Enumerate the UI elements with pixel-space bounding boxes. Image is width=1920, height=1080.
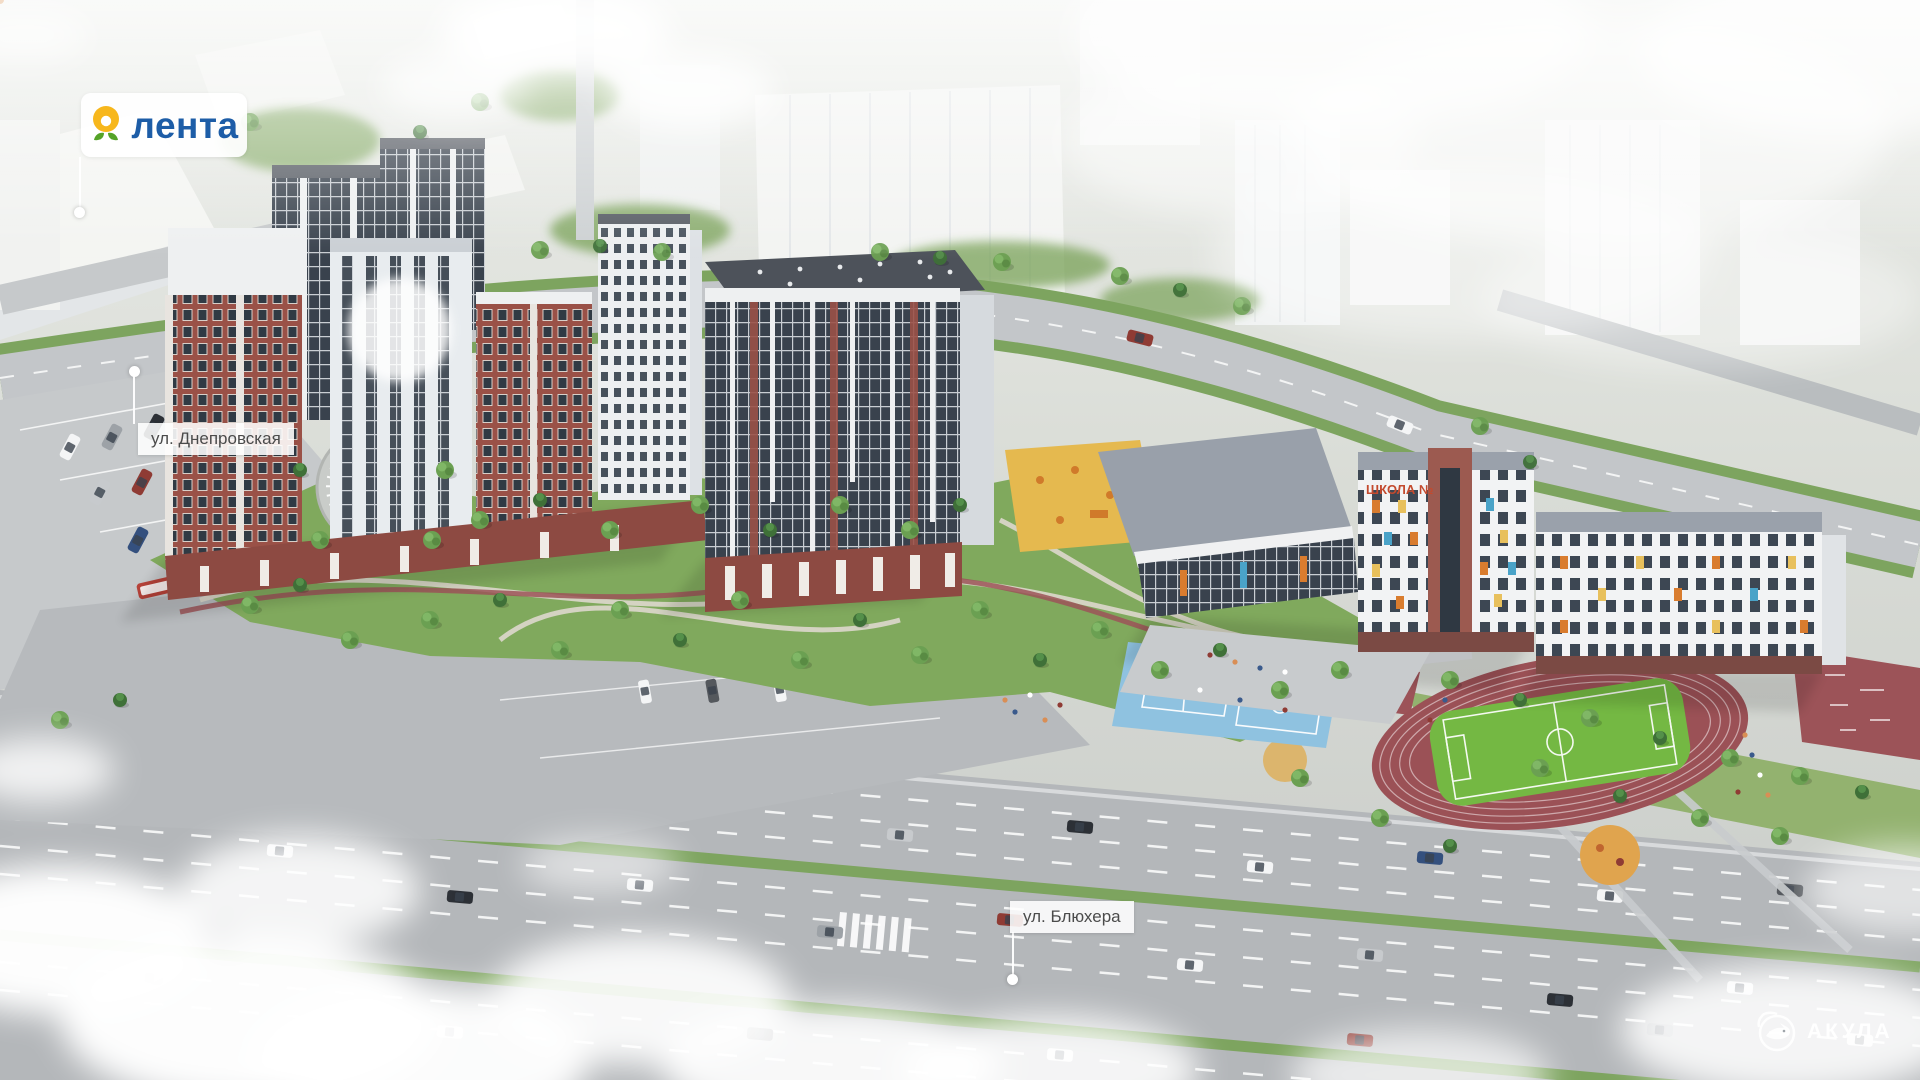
lenta-store-badge: лента xyxy=(81,93,247,157)
akula-watermark: АКУЛА xyxy=(1756,1010,1893,1054)
blyukhera-leader-dot xyxy=(1007,974,1018,985)
lenta-logo-text: лента xyxy=(131,107,238,144)
center-apartment-building xyxy=(705,250,994,612)
aerial-masterplan-render: ШКОЛА № xyxy=(0,0,1920,1080)
street-label-dneprovskaya: ул. Днепровская xyxy=(138,423,294,455)
lenta-leader-line xyxy=(79,157,81,209)
akula-watermark-text: АКУЛА xyxy=(1807,1020,1893,1044)
akula-shark-icon xyxy=(1756,1010,1798,1054)
school-facade-sign: ШКОЛА № xyxy=(1366,482,1433,497)
render-scene: ШКОЛА № xyxy=(0,0,1920,1080)
lenta-flower-icon xyxy=(89,105,123,145)
street-label-blyukhera: ул. Блюхера xyxy=(1010,901,1134,933)
lenta-leader-dot xyxy=(74,207,85,218)
dneprovskaya-leader-line xyxy=(133,376,135,424)
blyukhera-leader-line xyxy=(1012,932,1014,978)
